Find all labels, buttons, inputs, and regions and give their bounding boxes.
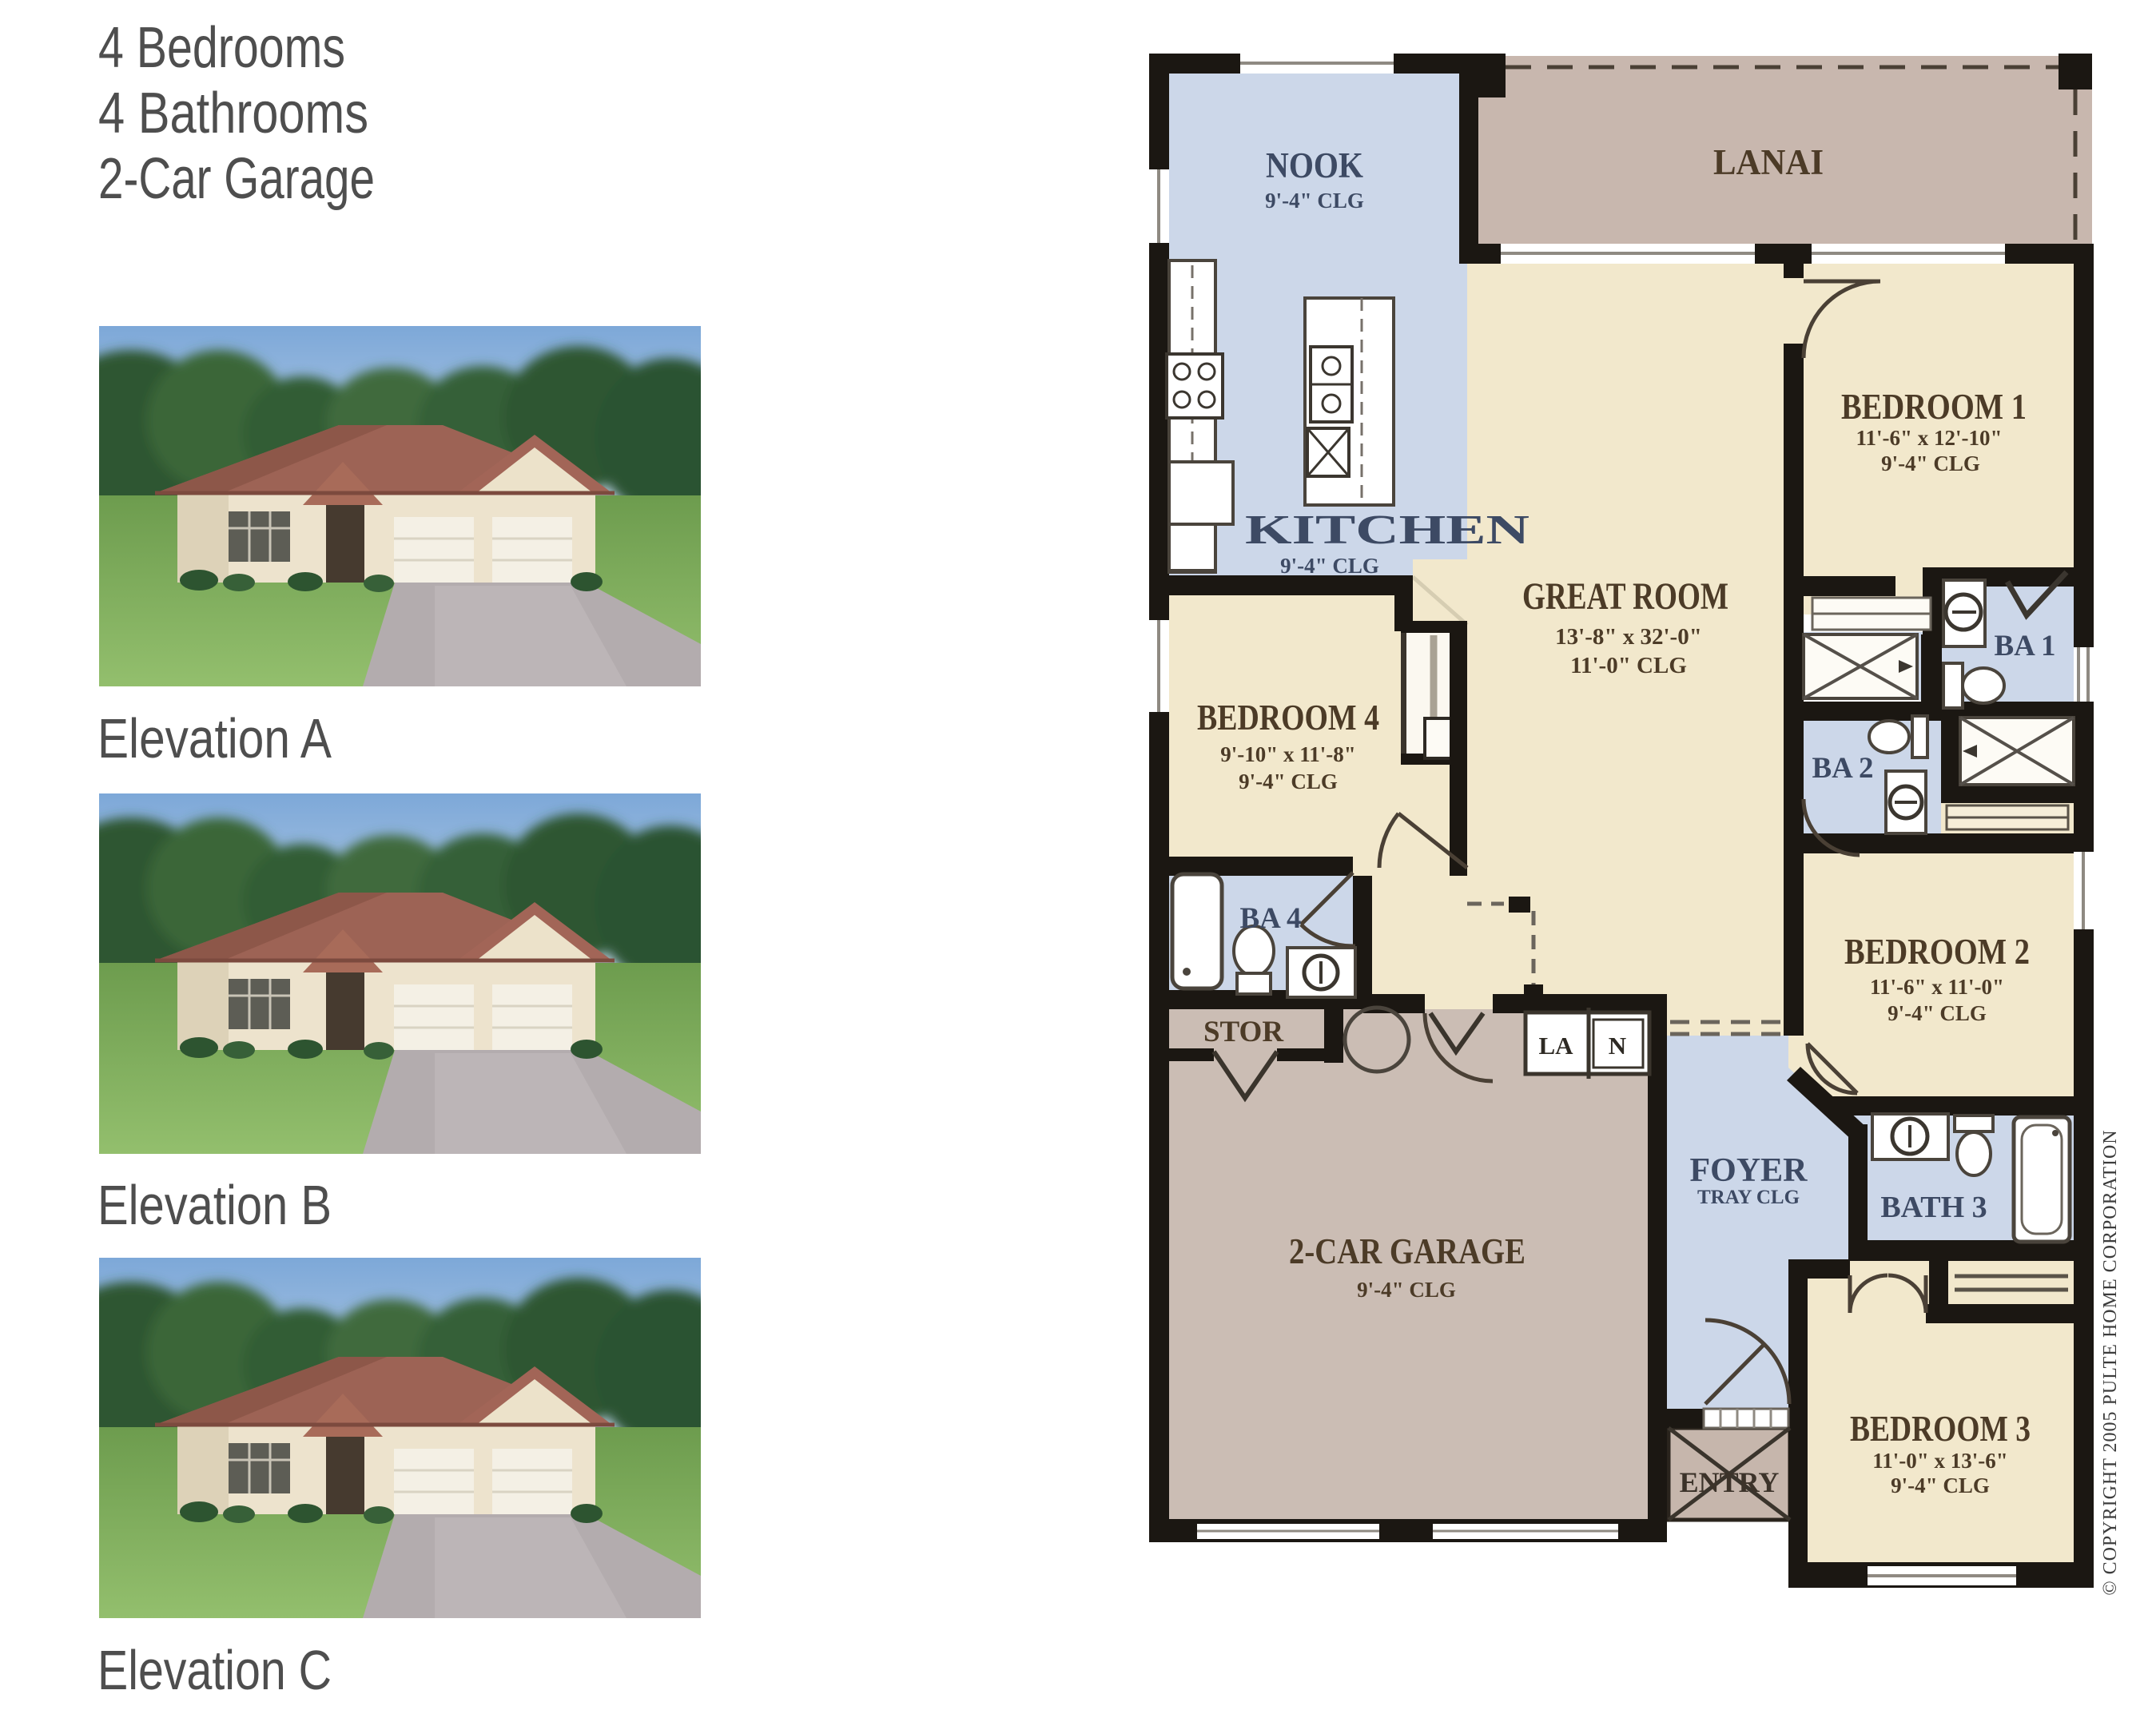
svg-text:NOOK: NOOK — [1266, 145, 1363, 185]
svg-text:GREAT ROOM: GREAT ROOM — [1522, 575, 1728, 618]
svg-text:BA 2: BA 2 — [1812, 752, 1873, 785]
svg-text:13'-8" x 32'-0": 13'-8" x 32'-0" — [1555, 624, 1702, 650]
svg-text:9'-4" CLG: 9'-4" CLG — [1280, 554, 1379, 578]
svg-text:© COPYRIGHT 2005 PULTE HOME CO: © COPYRIGHT 2005 PULTE HOME CORPORATION — [2100, 1129, 2121, 1595]
svg-text:9'-4" CLG: 9'-4" CLG — [1239, 770, 1338, 793]
svg-text:9'-4" CLG: 9'-4" CLG — [1891, 1473, 1990, 1497]
svg-text:BEDROOM 4: BEDROOM 4 — [1197, 697, 1379, 738]
svg-text:STOR: STOR — [1203, 1016, 1284, 1048]
svg-text:2-CAR GARAGE: 2-CAR GARAGE — [1289, 1231, 1526, 1271]
svg-text:BEDROOM 1: BEDROOM 1 — [1841, 386, 2027, 427]
svg-text:N: N — [1609, 1032, 1626, 1060]
svg-text:BA 1: BA 1 — [1994, 630, 2055, 662]
svg-text:ENTRY: ENTRY — [1680, 1466, 1780, 1498]
svg-text:LANAI: LANAI — [1713, 142, 1824, 182]
svg-text:FOYER: FOYER — [1690, 1152, 1808, 1189]
svg-text:Elevation B: Elevation B — [97, 1174, 332, 1236]
svg-text:BEDROOM 3: BEDROOM 3 — [1850, 1408, 2031, 1449]
svg-text:4 Bedrooms: 4 Bedrooms — [98, 16, 345, 80]
svg-text:9'-10" x 11'-8": 9'-10" x 11'-8" — [1220, 742, 1355, 766]
svg-text:9'-4" CLG: 9'-4" CLG — [1881, 451, 1980, 475]
svg-text:Elevation C: Elevation C — [97, 1639, 332, 1701]
svg-text:KITCHEN: KITCHEN — [1245, 507, 1529, 553]
svg-text:11'-6" x 12'-10": 11'-6" x 12'-10" — [1856, 426, 2003, 450]
svg-text:BATH 3: BATH 3 — [1880, 1191, 1987, 1224]
svg-text:9'-4" CLG: 9'-4" CLG — [1887, 1001, 1987, 1025]
svg-text:LA: LA — [1538, 1032, 1573, 1060]
svg-text:4 Bathrooms: 4 Bathrooms — [98, 82, 368, 145]
svg-text:9'-4" CLG: 9'-4" CLG — [1265, 189, 1364, 213]
svg-text:TRAY CLG: TRAY CLG — [1697, 1187, 1800, 1208]
svg-text:BEDROOM 2: BEDROOM 2 — [1844, 931, 2030, 972]
svg-text:2-Car Garage: 2-Car Garage — [98, 147, 375, 211]
svg-text:11'-0" x 13'-6": 11'-0" x 13'-6" — [1872, 1449, 2007, 1473]
svg-text:9'-4" CLG: 9'-4" CLG — [1357, 1278, 1456, 1302]
svg-text:11'-6" x 11'-0": 11'-6" x 11'-0" — [1870, 975, 2004, 999]
svg-text:Elevation A: Elevation A — [97, 707, 332, 770]
svg-text:11'-0" CLG: 11'-0" CLG — [1570, 653, 1687, 678]
svg-text:BA 4: BA 4 — [1239, 902, 1301, 935]
